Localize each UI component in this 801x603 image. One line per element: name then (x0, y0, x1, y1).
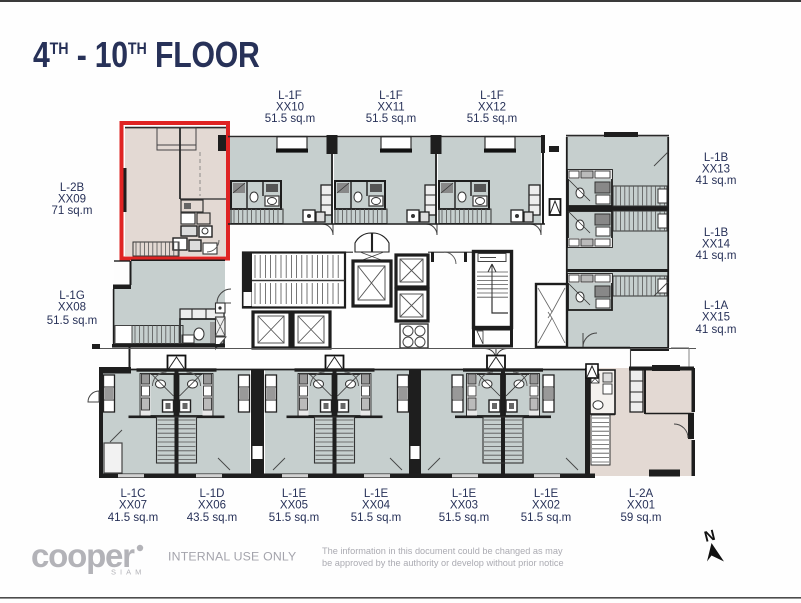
svg-text:XX08: XX08 (58, 302, 86, 314)
svg-text:L-1A: L-1A (704, 300, 729, 312)
svg-text:XX15: XX15 (702, 312, 730, 324)
svg-text:XX13: XX13 (702, 164, 730, 176)
svg-text:L-1F: L-1F (379, 90, 403, 102)
svg-text:The information in this docume: The information in this document could b… (322, 546, 563, 556)
svg-text:XX09: XX09 (58, 194, 86, 206)
svg-text:L-1C: L-1C (121, 488, 146, 500)
svg-text:XX11: XX11 (377, 102, 404, 114)
svg-text:L-2A: L-2A (629, 488, 654, 500)
svg-text:SIAM: SIAM (111, 568, 145, 577)
svg-text:XX06: XX06 (198, 500, 226, 512)
svg-text:XX07: XX07 (119, 500, 147, 512)
svg-text:51.5 sq.m: 51.5 sq.m (269, 512, 320, 524)
svg-text:XX04: XX04 (362, 500, 391, 512)
svg-text:XX03: XX03 (450, 500, 478, 512)
svg-text:INTERNAL USE ONLY: INTERNAL USE ONLY (168, 550, 296, 564)
svg-text:51.5 sq.m: 51.5 sq.m (47, 315, 98, 327)
svg-text:L-1D: L-1D (200, 488, 225, 500)
svg-text:41 sq.m: 41 sq.m (696, 175, 737, 187)
svg-text:51.5 sq.m: 51.5 sq.m (521, 512, 572, 524)
svg-text:L-1F: L-1F (278, 90, 302, 102)
svg-text:51.5 sq.m: 51.5 sq.m (366, 113, 417, 125)
svg-text:51.5 sq.m: 51.5 sq.m (351, 512, 402, 524)
svg-text:71 sq.m: 71 sq.m (52, 205, 93, 217)
svg-text:51.5 sq.m: 51.5 sq.m (467, 113, 518, 125)
svg-text:XX02: XX02 (532, 500, 560, 512)
svg-text:XX01: XX01 (627, 500, 655, 512)
svg-text:51.5 sq.m: 51.5 sq.m (265, 113, 316, 125)
svg-text:51.5 sq.m: 51.5 sq.m (439, 512, 490, 524)
svg-text:L-1B: L-1B (704, 152, 729, 164)
svg-text:41 sq.m: 41 sq.m (696, 324, 737, 336)
svg-text:XX10: XX10 (276, 102, 304, 114)
svg-text:41.5 sq.m: 41.5 sq.m (108, 512, 159, 524)
svg-text:L-1E: L-1E (364, 488, 389, 500)
svg-text:L-1E: L-1E (534, 488, 559, 500)
svg-text:43.5 sq.m: 43.5 sq.m (187, 512, 238, 524)
svg-text:L-1B: L-1B (704, 227, 729, 239)
svg-text:41 sq.m: 41 sq.m (696, 250, 737, 262)
svg-text:L-1G: L-1G (59, 290, 85, 302)
svg-text:XX05: XX05 (280, 500, 308, 512)
svg-text:59 sq.m: 59 sq.m (621, 512, 662, 524)
svg-text:L-2B: L-2B (60, 182, 85, 194)
svg-text:L-1E: L-1E (282, 488, 307, 500)
svg-text:be approved by the authority o: be approved by the authority or develop … (322, 558, 564, 568)
svg-text:L-1E: L-1E (452, 488, 477, 500)
svg-text:L-1F: L-1F (480, 90, 504, 102)
svg-text:XX14: XX14 (702, 239, 731, 251)
svg-text:XX12: XX12 (478, 102, 506, 114)
